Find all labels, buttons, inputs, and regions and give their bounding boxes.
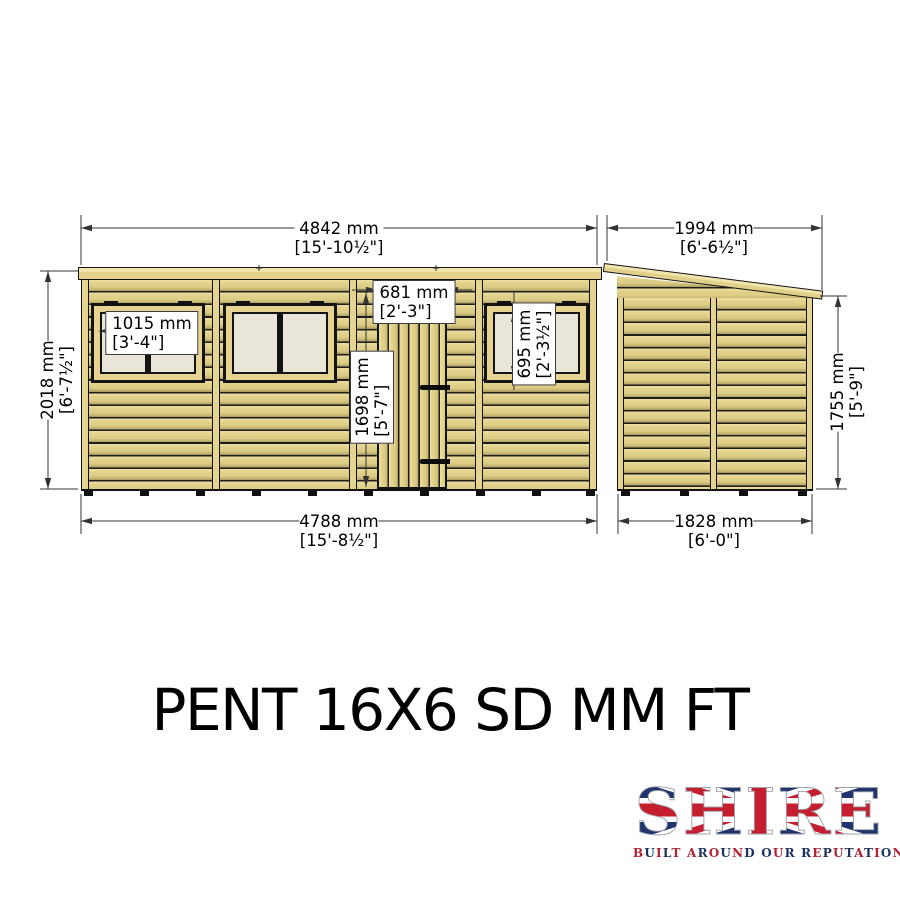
dim-value-ftin: [6'-7½"] — [57, 340, 76, 419]
dim-side-roof-depth: 1994 mm [6'-6½"] — [674, 219, 753, 257]
dim-value-mm: 1698 mm — [353, 357, 372, 436]
dim-value-ftin: [6'-6½"] — [674, 238, 753, 257]
dim-value-mm: 1994 mm — [674, 219, 753, 238]
dim-value-ftin: [5'-7"] — [372, 357, 391, 436]
logo-text-outline: SHIRE — [635, 775, 884, 850]
shire-logo: SHIRE SHIRE BUILT AROUND OUR REPUTATION — [633, 770, 885, 860]
dim-window-width: 1015 mm [3'-4"] — [105, 311, 198, 355]
dim-value-ftin: [5'-9"] — [847, 352, 866, 431]
dim-value-mm: 1755 mm — [828, 352, 847, 431]
dim-value-mm: 681 mm — [380, 283, 449, 302]
dim-value-ftin: [15'-10½"] — [295, 238, 384, 257]
logo-tagline: BUILT AROUND OUR REPUTATION — [633, 846, 885, 860]
shire-logo-wordmark: SHIRE SHIRE — [633, 770, 885, 850]
dim-value-mm: 4788 mm — [299, 512, 378, 531]
dim-front-base-width: 4788 mm [15'-8½"] — [299, 512, 378, 550]
dim-side-eaves-height: 1755 mm [5'-9"] — [828, 352, 866, 431]
shed-technical-drawing: 4842 mm [15'-10½"] 1994 mm [6'-6½"] 2018… — [0, 0, 900, 900]
dim-value-mm: 1828 mm — [674, 512, 753, 531]
dim-value-ftin: [2'-3½"] — [534, 310, 553, 379]
dim-value-ftin: [2'-3"] — [380, 302, 449, 321]
dim-side-base-depth: 1828 mm [6'-0"] — [674, 512, 753, 550]
dim-value-mm: 1015 mm — [112, 314, 191, 333]
dim-value-ftin: [6'-0"] — [674, 531, 753, 550]
dim-front-roof-width: 4842 mm [15'-10½"] — [295, 219, 384, 257]
dimension-lines — [0, 0, 900, 900]
dim-value-ftin: [15'-8½"] — [299, 531, 378, 550]
dim-value-mm: 4842 mm — [295, 219, 384, 238]
dim-door-width: 681 mm [2'-3"] — [373, 280, 456, 324]
drawing-title: PENT 16X6 SD MM FT — [0, 676, 900, 744]
dim-window-height: 695 mm [2'-3½"] — [512, 303, 556, 386]
dim-door-height: 1698 mm [5'-7"] — [350, 350, 394, 443]
dim-value-mm: 695 mm — [515, 310, 534, 379]
dim-front-height: 2018 mm [6'-7½"] — [38, 340, 76, 419]
dim-value-ftin: [3'-4"] — [112, 333, 191, 352]
dim-value-mm: 2018 mm — [38, 340, 57, 419]
